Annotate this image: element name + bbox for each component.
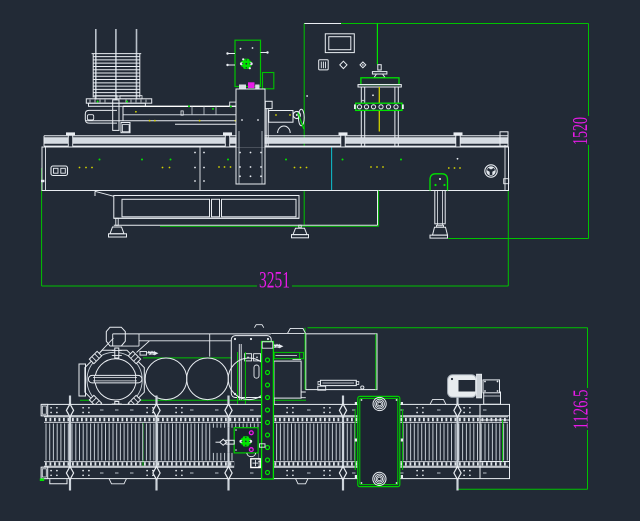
svg-text:1126.5: 1126.5	[568, 390, 592, 430]
svg-text:1520: 1520	[568, 117, 592, 145]
svg-text:3251: 3251	[259, 268, 290, 293]
